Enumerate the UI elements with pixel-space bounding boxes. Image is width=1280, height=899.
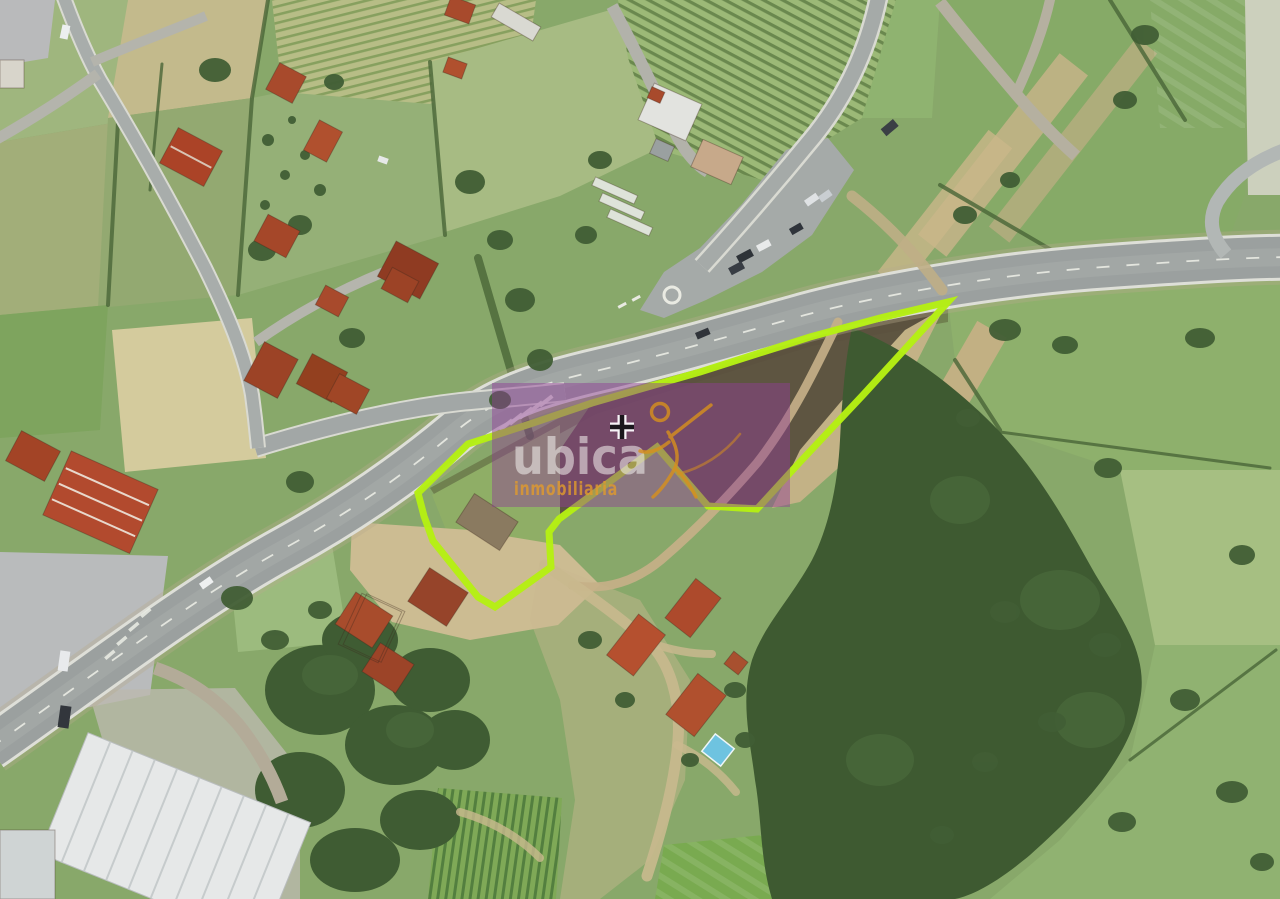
aerial-photo: ubica inmobiliaria — [0, 0, 1280, 899]
watermark-tagline: inmobiliaria — [514, 478, 618, 500]
watermark-overlay: ubica inmobiliaria — [492, 383, 790, 507]
aerial-map[interactable]: ubica inmobiliaria — [0, 0, 1280, 899]
